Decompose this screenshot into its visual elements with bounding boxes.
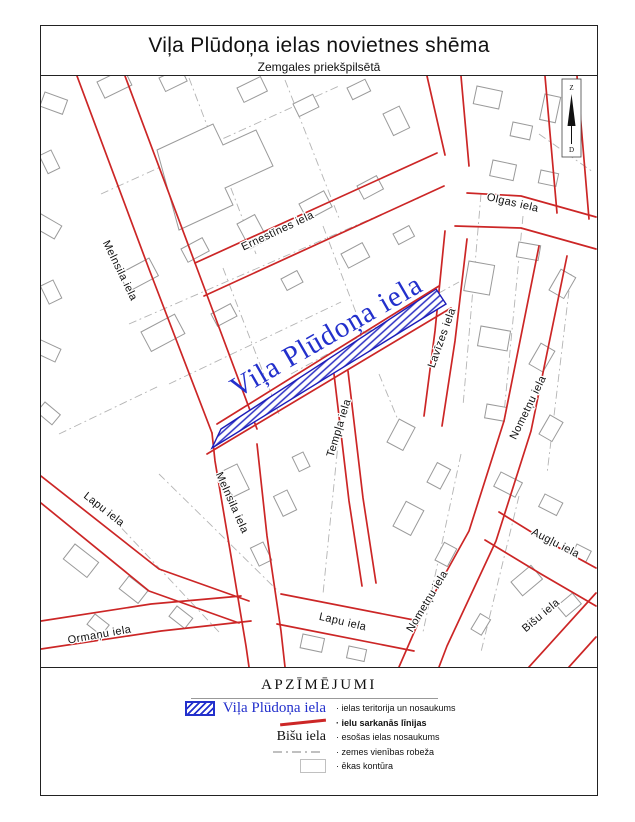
street-label-bisu: Bišu iela — [520, 596, 563, 635]
legend-desc: · zemes vienības robeža — [336, 745, 597, 760]
page-title: Viļa Plūdoņa ielas novietnes shēma — [41, 34, 597, 58]
legend-row-parcel-symbol — [41, 745, 336, 760]
map-canvas: Melnsila iela Ernestīnes iela Olgas iela… — [41, 76, 597, 667]
map-area: Melnsila iela Ernestīnes iela Olgas iela… — [41, 76, 597, 667]
legend-row-territory-symbol: Viļa Plūdoņa iela — [41, 701, 336, 716]
legend-label-existing-street: Bišu iela — [277, 729, 326, 745]
legend-row-redline-symbol — [41, 716, 336, 731]
sheet: Viļa Plūdoņa ielas novietnes shēma Zemga… — [40, 25, 598, 796]
street-label-lapu-w: Lapu iela — [81, 490, 127, 529]
legend-symbol-redline — [280, 718, 326, 725]
legend: APZĪMĒJUMI Viļa Plūdoņa iela · ielas ter… — [41, 667, 597, 796]
legend-rows: Viļa Plūdoņa iela · ielas teritorija un … — [41, 701, 597, 774]
legend-symbol-building — [300, 759, 326, 773]
street-label-templa: Tempļa iela — [325, 397, 354, 458]
title-block: Viļa Plūdoņa ielas novietnes shēma Zemga… — [41, 26, 597, 76]
legend-desc: · ielu sarkanās līnijas — [336, 716, 597, 731]
legend-desc: · esošas ielas nosaukums — [336, 730, 597, 745]
north-label-z: Z — [569, 84, 573, 92]
highlight-street-label: Viļa Plūdoņa iela — [225, 268, 429, 404]
legend-title: APZĪMĒJUMI — [41, 677, 597, 694]
page-subtitle: Zemgales priekšpilsētā — [41, 60, 597, 74]
street-label-nometnu-s: Nometņu iela — [404, 568, 450, 634]
north-arrow: Z D — [562, 79, 581, 157]
legend-desc: · ēkas kontūra — [336, 759, 597, 774]
legend-symbol-parcel-line — [272, 748, 324, 756]
south-label-d: D — [569, 146, 574, 154]
legend-row-building-symbol — [41, 759, 336, 774]
street-label-lavizes: Lavīzes iela — [426, 306, 459, 370]
street-label-auglu: Augļu iela — [529, 526, 581, 561]
street-label-lapu-s: Lapu iela — [318, 611, 368, 634]
legend-swatch-territory — [185, 701, 215, 716]
legend-label-highlight-street: Viļa Plūdoņa iela — [223, 700, 326, 717]
legend-row-existing-street: Bišu iela — [41, 730, 336, 745]
scheme-page: Viļa Plūdoņa ielas novietnes shēma Zemga… — [0, 0, 635, 822]
legend-desc: · ielas teritorija un nosaukums — [336, 701, 597, 716]
